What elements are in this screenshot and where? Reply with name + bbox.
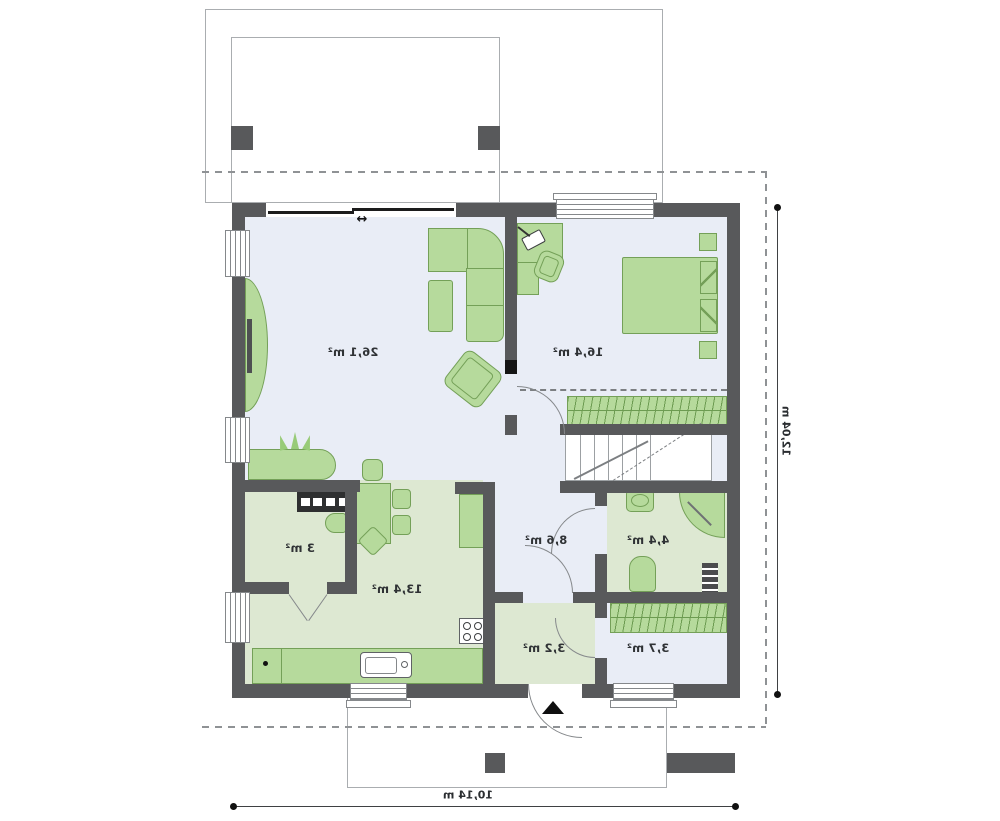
wall-living-kitchen-a bbox=[245, 480, 360, 492]
terrace-post bbox=[478, 126, 500, 150]
pantry-area-label: 3 m² bbox=[285, 541, 315, 555]
living-room-area-label: 26,1 m² bbox=[328, 345, 379, 359]
wall-exterior-right bbox=[727, 203, 740, 698]
window-sill bbox=[346, 700, 411, 708]
shelf-box bbox=[326, 498, 335, 506]
dimension-dot bbox=[774, 691, 781, 698]
faucet-icon bbox=[401, 661, 408, 668]
window-sill bbox=[610, 700, 677, 708]
chair bbox=[392, 489, 411, 509]
wall-wardrobe-bottom bbox=[560, 424, 727, 435]
stairs bbox=[565, 434, 712, 481]
sofa-corner-side bbox=[466, 268, 504, 342]
terrace-outline bbox=[231, 37, 500, 203]
chair-seat bbox=[538, 255, 560, 279]
bedroom-wardrobe bbox=[567, 396, 727, 425]
kitchen-side-window bbox=[225, 592, 250, 643]
wall-pantry-right bbox=[345, 492, 357, 594]
burner-icon bbox=[463, 633, 471, 641]
bedroom-window bbox=[556, 199, 654, 219]
counter-drain-dot bbox=[263, 661, 268, 666]
floor-plan: ↔ 26,1 m² 16,4 m² 8,6 m² 4,4 m² 13,4 m² … bbox=[0, 0, 1000, 821]
wall-kitchen-hall bbox=[483, 482, 495, 684]
stair-tread bbox=[636, 435, 637, 480]
dimension-dot bbox=[732, 803, 739, 810]
kitchen-window bbox=[350, 683, 407, 700]
wall-stairs-bottom bbox=[560, 481, 727, 493]
radiator bbox=[702, 563, 718, 592]
burner-icon bbox=[474, 622, 482, 630]
living-window bbox=[225, 230, 250, 277]
door-stop bbox=[505, 360, 517, 374]
dimension-line-right bbox=[777, 207, 778, 695]
chair bbox=[392, 515, 411, 535]
kitchen-area-label: 13,4 m² bbox=[372, 582, 423, 596]
burner-icon bbox=[463, 622, 471, 630]
sliding-arrow-icon: ↔ bbox=[348, 213, 376, 227]
overall-height-label: 12,04 m bbox=[780, 406, 793, 456]
wall-closet-left-b bbox=[595, 658, 607, 684]
sink-basin bbox=[365, 657, 397, 674]
kitchen-sink bbox=[360, 652, 412, 678]
tv bbox=[247, 319, 252, 373]
pouf bbox=[362, 459, 383, 481]
stove bbox=[459, 618, 485, 644]
plant-leaves-icon bbox=[278, 433, 316, 451]
burner-icon bbox=[474, 633, 482, 641]
leaf bbox=[276, 434, 288, 451]
sliding-door-panel bbox=[268, 211, 354, 214]
wardrobe-shelf-dashed bbox=[520, 389, 727, 391]
wall-bathroom-left-a bbox=[595, 492, 607, 506]
sofa-corner-top bbox=[428, 228, 504, 272]
wall-bathroom-closet bbox=[607, 592, 727, 603]
sofa-seam bbox=[467, 229, 468, 271]
closet-wardrobe bbox=[610, 603, 727, 633]
dimension-line-bottom bbox=[233, 806, 736, 807]
porch-post bbox=[667, 753, 735, 773]
counter-seam bbox=[281, 649, 282, 683]
vestibule-area-label: 3,2 m² bbox=[523, 641, 566, 655]
sliding-door-panel bbox=[352, 208, 454, 211]
toilet bbox=[629, 556, 656, 592]
stair-tread bbox=[608, 435, 609, 480]
sink-bowl bbox=[631, 494, 649, 507]
sofa-cushion bbox=[428, 280, 453, 332]
sofa-seam bbox=[467, 305, 503, 306]
pillow bbox=[700, 299, 717, 332]
nightstand bbox=[699, 233, 717, 251]
stair-tread bbox=[594, 435, 595, 480]
dimension-dot bbox=[230, 803, 237, 810]
wall-living-bedroom bbox=[505, 217, 517, 374]
wall-closet-left-a bbox=[595, 603, 607, 618]
stair-direction-line bbox=[574, 440, 649, 479]
fridge bbox=[459, 494, 484, 548]
shelf-box bbox=[301, 498, 310, 506]
pantry-shelf bbox=[297, 492, 351, 512]
closet-area-label: 3,7 m² bbox=[627, 641, 670, 655]
leaf bbox=[291, 432, 299, 449]
overall-width-label: 10,14 m bbox=[443, 789, 493, 802]
closet-window bbox=[613, 683, 674, 700]
leaf bbox=[302, 434, 314, 451]
dashed-guide-bottom bbox=[202, 726, 766, 728]
pillow bbox=[700, 261, 717, 294]
terrace-post bbox=[231, 126, 253, 150]
porch-outline bbox=[347, 698, 667, 788]
bathroom-area-label: 4,4 m² bbox=[627, 533, 670, 547]
wall-stub-hall bbox=[505, 415, 517, 435]
pantry-basin bbox=[325, 513, 346, 533]
wall-bathroom-left-b bbox=[595, 554, 607, 592]
dimension-dot bbox=[774, 204, 781, 211]
living-window bbox=[225, 417, 250, 463]
stair-tread bbox=[650, 435, 651, 480]
nightstand bbox=[699, 341, 717, 359]
shelf-box bbox=[313, 498, 322, 506]
wall-pantry-bottom-b bbox=[327, 582, 357, 594]
wall-hall-vestibule-b bbox=[573, 592, 607, 603]
dashed-guide-right bbox=[765, 171, 767, 728]
dashed-guide-top bbox=[202, 171, 766, 173]
wall-living-kitchen-b bbox=[455, 482, 495, 494]
entrance-arrow-icon bbox=[542, 701, 564, 714]
hall-area-label: 8,6 m² bbox=[525, 533, 568, 547]
window-sill bbox=[553, 193, 657, 200]
porch-post bbox=[485, 753, 505, 773]
armchair-seat bbox=[450, 356, 495, 401]
plant-bench bbox=[248, 449, 336, 480]
bedroom-area-label: 16,4 m² bbox=[553, 345, 604, 359]
wall-pantry-bottom-a bbox=[245, 582, 289, 594]
